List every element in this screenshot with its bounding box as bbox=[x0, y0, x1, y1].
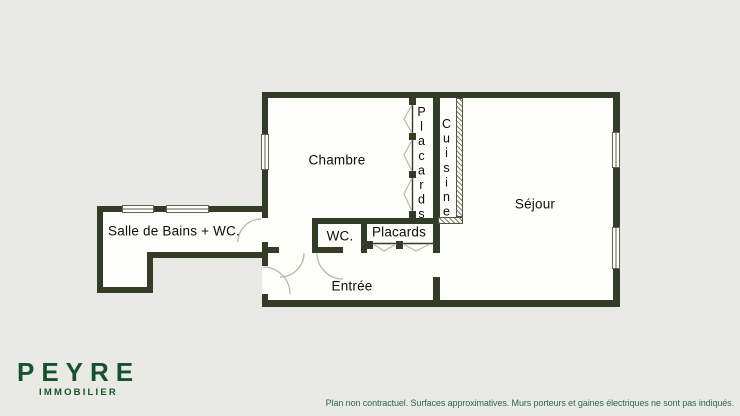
window bbox=[612, 132, 620, 168]
wall-segment bbox=[613, 167, 620, 228]
wall-segment bbox=[97, 287, 153, 293]
disclaimer-text: Plan non contractuel. Surfaces approxima… bbox=[326, 398, 734, 408]
wall-segment bbox=[147, 252, 262, 258]
wall-segment bbox=[613, 268, 620, 307]
room-label-sejour: Séjour bbox=[515, 197, 555, 212]
wall-segment bbox=[433, 277, 440, 301]
glazed-partition bbox=[456, 98, 463, 217]
room-label-cuisine: Cuisine bbox=[440, 117, 453, 219]
room-label-placards-chambre: Placards bbox=[415, 105, 428, 222]
wall-segment bbox=[147, 252, 153, 293]
wall-segment bbox=[153, 206, 166, 212]
room-label-wc: WC. bbox=[327, 229, 354, 244]
wall-segment bbox=[262, 242, 268, 266]
window bbox=[261, 134, 269, 170]
wall-segment bbox=[433, 98, 440, 253]
wall-segment bbox=[613, 92, 620, 133]
wall-segment bbox=[208, 206, 262, 212]
room-label-chambre: Chambre bbox=[309, 153, 366, 168]
logo-title: PEYRE bbox=[17, 359, 140, 385]
room-label-salle-de-bains: Salle de Bains + WC. bbox=[108, 224, 240, 239]
wall-segment bbox=[262, 92, 268, 136]
window bbox=[166, 205, 209, 213]
floor-plan: Chambre Séjour Salle de Bains + WC. WC. … bbox=[0, 0, 740, 416]
wall-segment bbox=[312, 247, 343, 253]
wall-segment bbox=[262, 294, 268, 307]
wall-segment bbox=[262, 247, 279, 253]
window bbox=[612, 227, 620, 269]
wall-segment bbox=[262, 169, 268, 218]
room-label-entree: Entrée bbox=[332, 279, 373, 294]
wall-segment bbox=[262, 300, 620, 307]
logo-subtitle: IMMOBILIER bbox=[39, 388, 140, 398]
room-label-placards-entree: Placards bbox=[372, 225, 426, 240]
window bbox=[122, 205, 154, 213]
brand-logo: PEYRE IMMOBILIER bbox=[17, 359, 140, 398]
wall-post bbox=[396, 241, 403, 249]
wall-post bbox=[366, 241, 373, 249]
wall-segment bbox=[97, 206, 103, 293]
wall-post bbox=[409, 98, 416, 105]
wall-segment bbox=[262, 92, 620, 98]
